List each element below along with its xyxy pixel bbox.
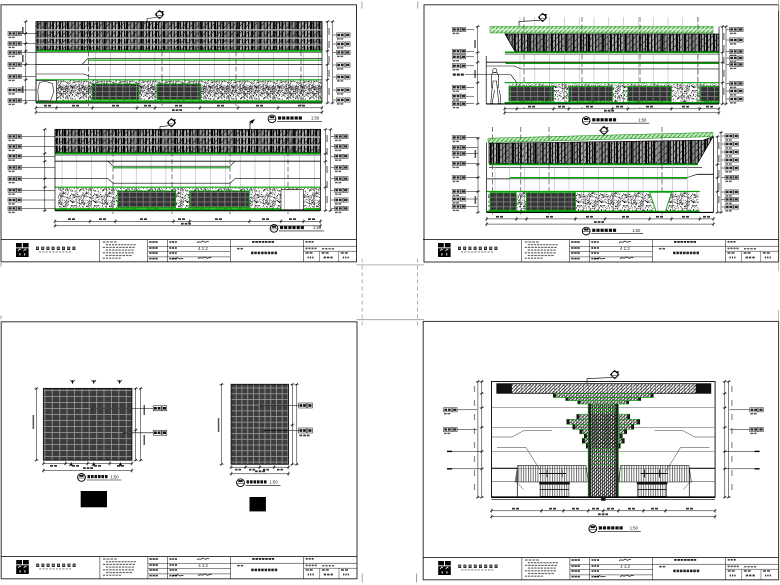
svg-text:1:50: 1:50 xyxy=(630,526,639,531)
svg-text:4 1:2: 4 1:2 xyxy=(620,246,630,251)
svg-text:4 1:2: 4 1:2 xyxy=(198,246,208,251)
svg-text:1:50: 1:50 xyxy=(632,228,641,233)
svg-text:4 1:2: 4 1:2 xyxy=(620,564,630,569)
svg-text:1:50: 1:50 xyxy=(313,225,322,230)
svg-text:4 1:2: 4 1:2 xyxy=(198,563,208,568)
svg-text:1:50: 1:50 xyxy=(111,474,120,479)
svg-text:1:50: 1:50 xyxy=(638,118,647,123)
svg-text:1:50: 1:50 xyxy=(270,480,279,485)
svg-text:1:50: 1:50 xyxy=(311,116,320,121)
